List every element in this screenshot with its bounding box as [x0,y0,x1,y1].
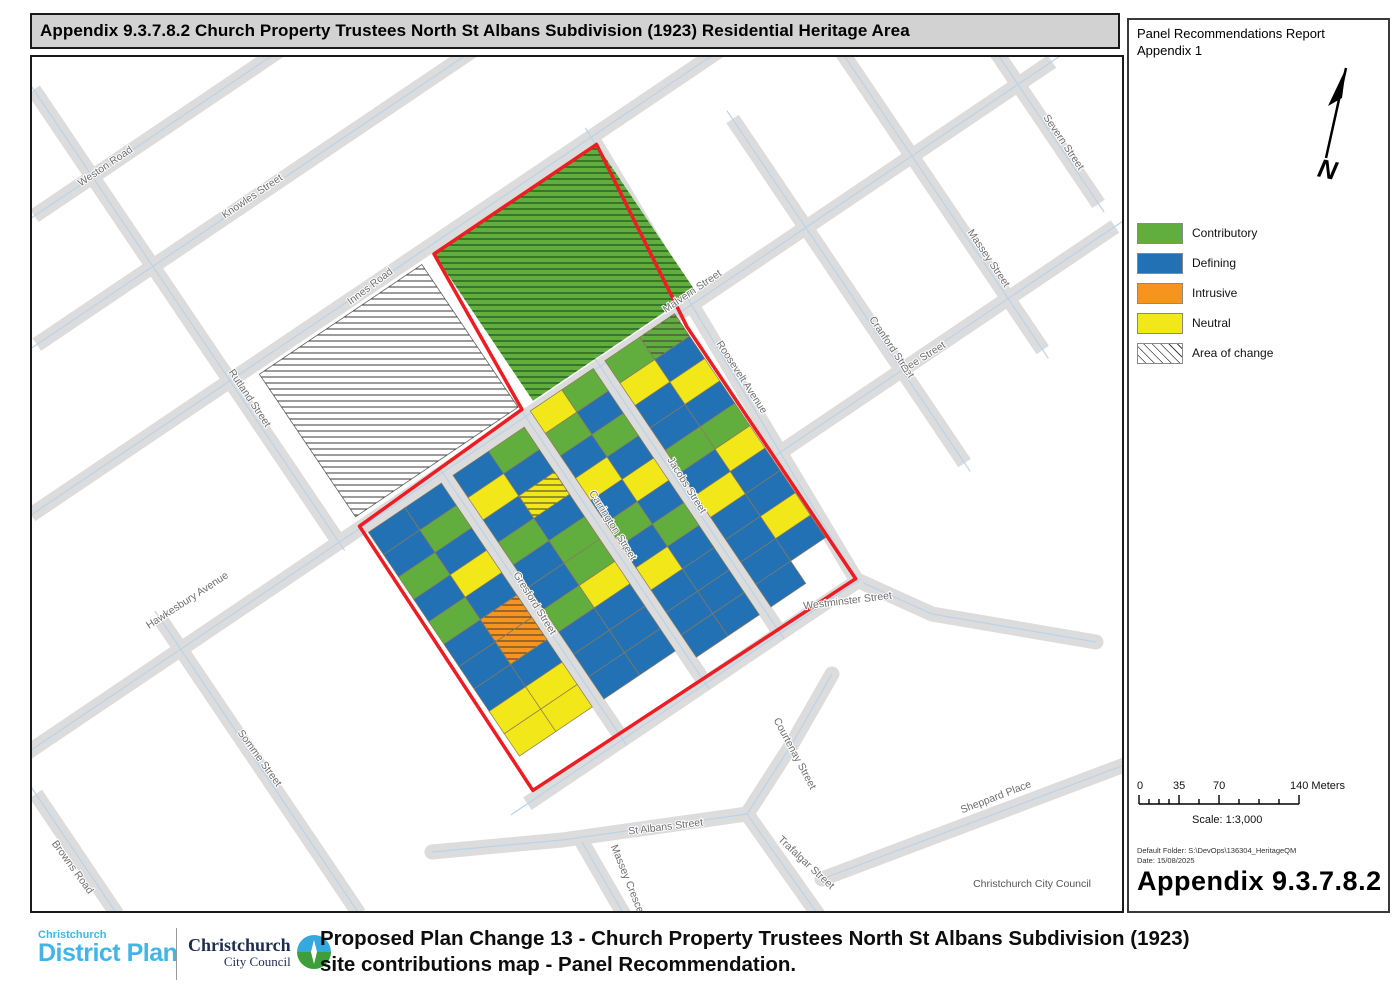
svg-text:N: N [1315,153,1341,187]
legend: ContributoryDefiningIntrusiveNeutralArea… [1137,218,1273,368]
legend-swatch [1137,283,1183,304]
street-label: Knowles Street [220,172,285,221]
district-plan-logo: Christchurch District Plan [38,930,177,966]
footer-divider [176,928,177,980]
legend-item: Neutral [1137,308,1273,338]
north-arrow-icon: N [1315,68,1346,186]
legend-swatch [1137,343,1183,364]
scale-bar: 0 35 70 140 Meters Scale: 1:3,000 [1137,780,1377,826]
map-caption: Proposed Plan Change 13 - Church Propert… [320,926,1395,977]
map-title: Appendix 9.3.7.8.2 Church Property Trust… [40,21,910,41]
map-title-bar: Appendix 9.3.7.8.2 Church Property Trust… [30,13,1120,49]
north-arrow: N [1312,60,1360,195]
map-canvas: Weston RoadKnowles StreetInnes RoadRutla… [30,55,1124,913]
map-credit: Christchurch City Council [973,878,1091,890]
appendix-number: Appendix 9.3.7.8.2 [1137,866,1382,897]
legend-item: Area of change [1137,338,1273,368]
report-page: Appendix 9.3.7.8.2 Church Property Trust… [0,0,1398,989]
legend-label: Area of change [1192,346,1273,360]
panel-title: Panel Recommendations Report Appendix 1 [1137,26,1325,60]
scale-tick-labels: 0 35 70 140 Meters [1137,780,1377,793]
legend-label: Intrusive [1192,286,1237,300]
city-council-logo: Christchurch City Council [188,934,332,970]
scale-text: Scale: 1:3,000 [1192,814,1377,826]
heritage-area-map: Weston RoadKnowles StreetInnes RoadRutla… [32,57,1124,913]
legend-swatch [1137,253,1183,274]
folder-info: Default Folder: S:\DevOps\136304_Heritag… [1137,846,1296,866]
legend-label: Defining [1192,256,1236,270]
legend-swatch [1137,223,1183,244]
legend-label: Neutral [1192,316,1231,330]
legend-item: Contributory [1137,218,1273,248]
footer-bar: Christchurch District Plan Christchurch … [0,920,1398,989]
street-label: Somme Street [235,728,284,789]
scale-bar-ticks [1137,793,1337,807]
legend-label: Contributory [1192,226,1257,240]
legend-swatch [1137,313,1183,334]
legend-item: Intrusive [1137,278,1273,308]
side-panel: Panel Recommendations Report Appendix 1 … [1127,18,1390,913]
legend-item: Defining [1137,248,1273,278]
